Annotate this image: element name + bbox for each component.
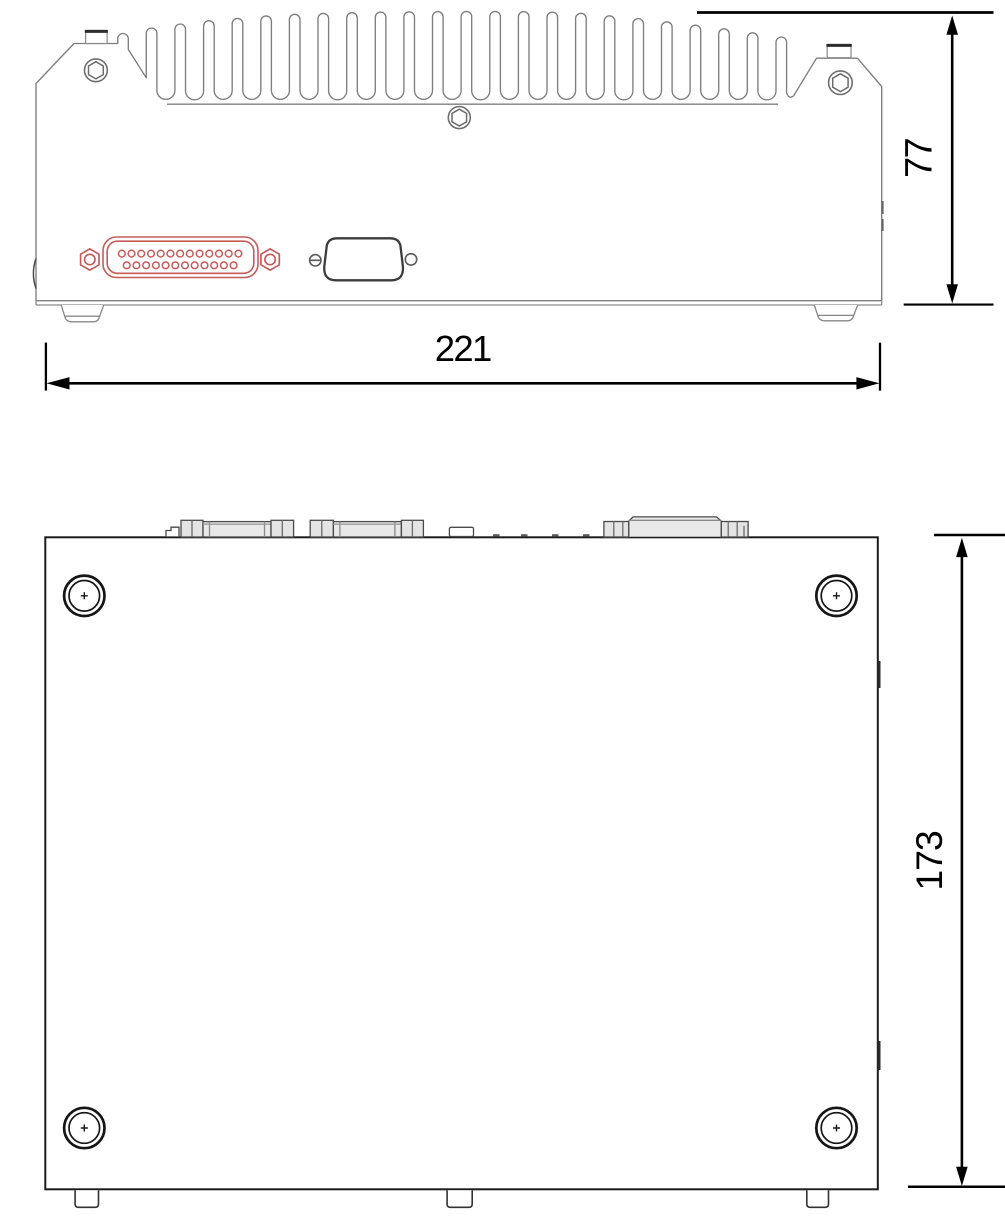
svg-text:77: 77 bbox=[899, 139, 941, 179]
svg-text:173: 173 bbox=[908, 831, 950, 891]
svg-text:221: 221 bbox=[435, 328, 491, 369]
